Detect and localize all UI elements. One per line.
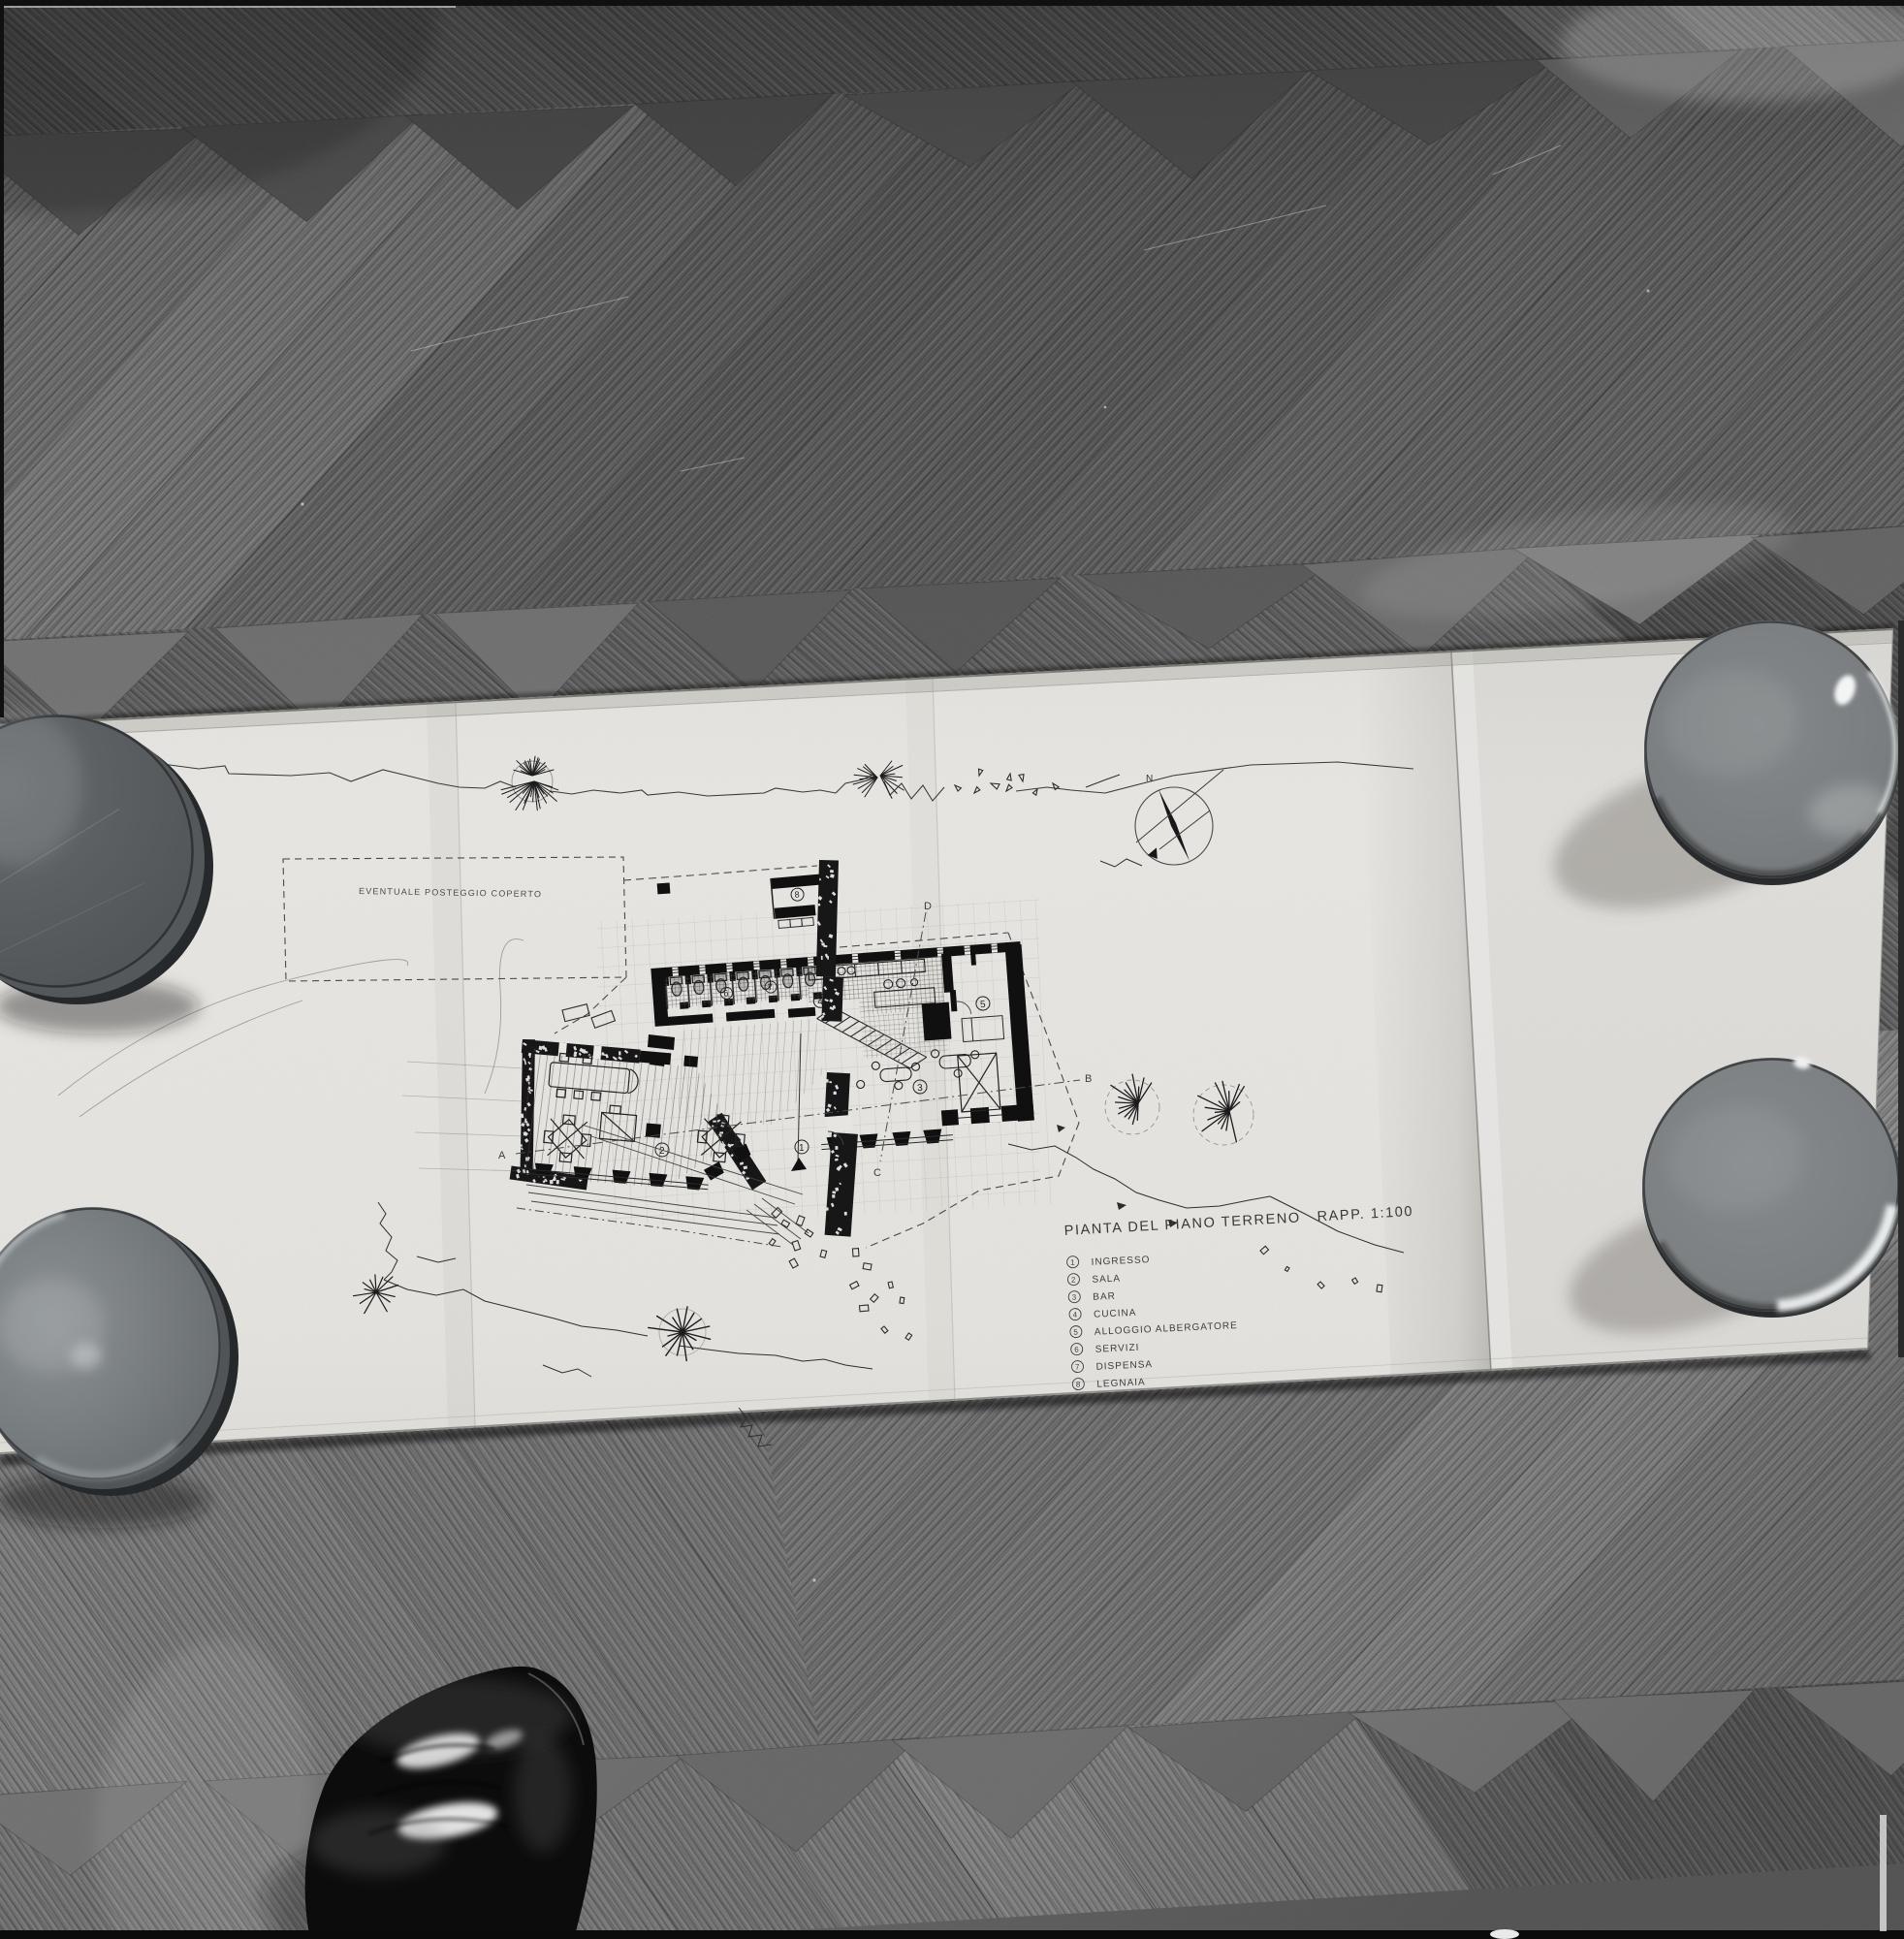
svg-text:8: 8 <box>794 890 800 900</box>
svg-text:C: C <box>873 1167 881 1179</box>
svg-text:LEGNAIA: LEGNAIA <box>1096 1377 1146 1389</box>
svg-text:B: B <box>1085 1073 1092 1085</box>
svg-text:6: 6 <box>723 988 729 998</box>
svg-text:SALA: SALA <box>1092 1273 1121 1285</box>
svg-text:BAR: BAR <box>1093 1291 1116 1303</box>
svg-text:A: A <box>498 1150 506 1161</box>
svg-text:1: 1 <box>799 1143 805 1154</box>
svg-text:D: D <box>924 901 932 912</box>
svg-text:7: 7 <box>768 982 774 992</box>
svg-text:2: 2 <box>659 1146 665 1157</box>
svg-text:N: N <box>1146 774 1153 784</box>
svg-text:CUCINA: CUCINA <box>1094 1308 1137 1320</box>
svg-text:SERVIZI: SERVIZI <box>1095 1343 1140 1355</box>
